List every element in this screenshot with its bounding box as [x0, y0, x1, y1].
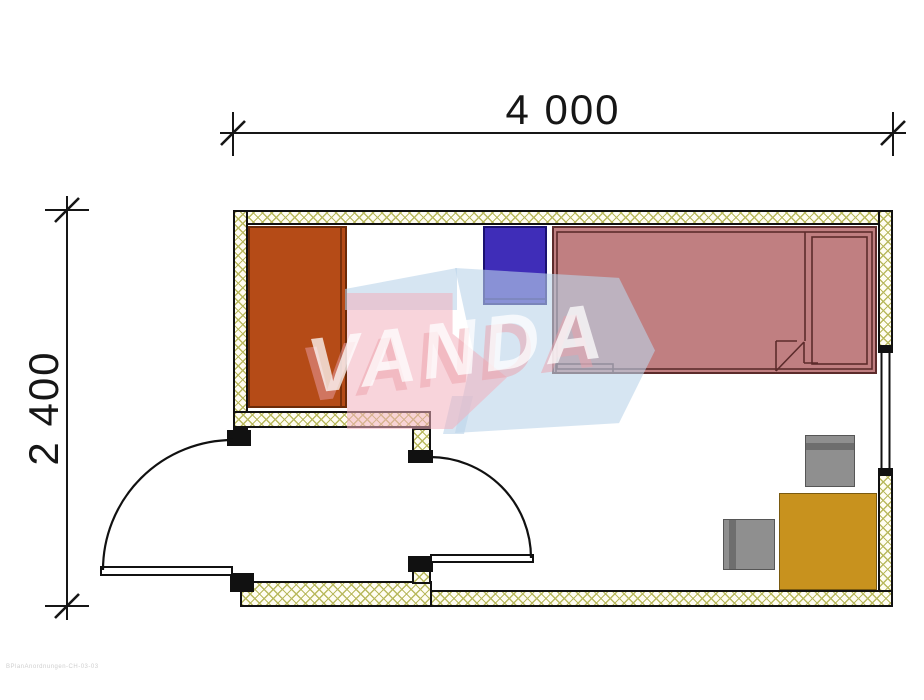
- watermark-blue-arrow-band: [345, 268, 457, 310]
- desk: [779, 493, 877, 590]
- chair-near-window: [805, 435, 855, 487]
- window-glazing-lines: [882, 353, 890, 468]
- partition-wall-horizontal: [233, 411, 431, 428]
- watermark-pink-arrow: [347, 293, 507, 429]
- chair-backrest: [729, 520, 736, 569]
- chair-at-desk: [723, 519, 775, 570]
- wall-right-lower: [878, 473, 893, 592]
- wall-bottom-main: [430, 590, 893, 607]
- interior-door-leaf: [430, 554, 534, 563]
- entrance-door-arc: [103, 440, 233, 570]
- partition-wall-vertical-bottom: [412, 570, 431, 584]
- wall-bottom-vestibule: [240, 581, 432, 607]
- entrance-door-leaf: [100, 566, 233, 576]
- wardrobe: [248, 226, 347, 408]
- dimension-height-label: 2 400: [20, 308, 68, 508]
- footer-note: BPlanAnordnungen-CH-03-03: [6, 664, 99, 670]
- entrance-door-jamb-top: [227, 430, 251, 446]
- bed: [552, 226, 877, 374]
- watermark-blue-arrow-tail: [443, 396, 473, 434]
- interior-door-jamb-top: [408, 450, 433, 463]
- floor-plan: 4 000 2 400 VANDA BPlanAnordnungen-CH-03…: [0, 0, 924, 700]
- wall-right-upper: [878, 210, 893, 347]
- wall-top: [233, 210, 893, 225]
- interior-door-arc: [430, 457, 531, 558]
- entrance-door-jamb-bottom: [230, 573, 254, 592]
- dimension-width-label: 4 000: [463, 86, 663, 134]
- chair-backrest: [806, 443, 854, 450]
- nightstand: [483, 226, 547, 305]
- wall-left: [233, 210, 248, 430]
